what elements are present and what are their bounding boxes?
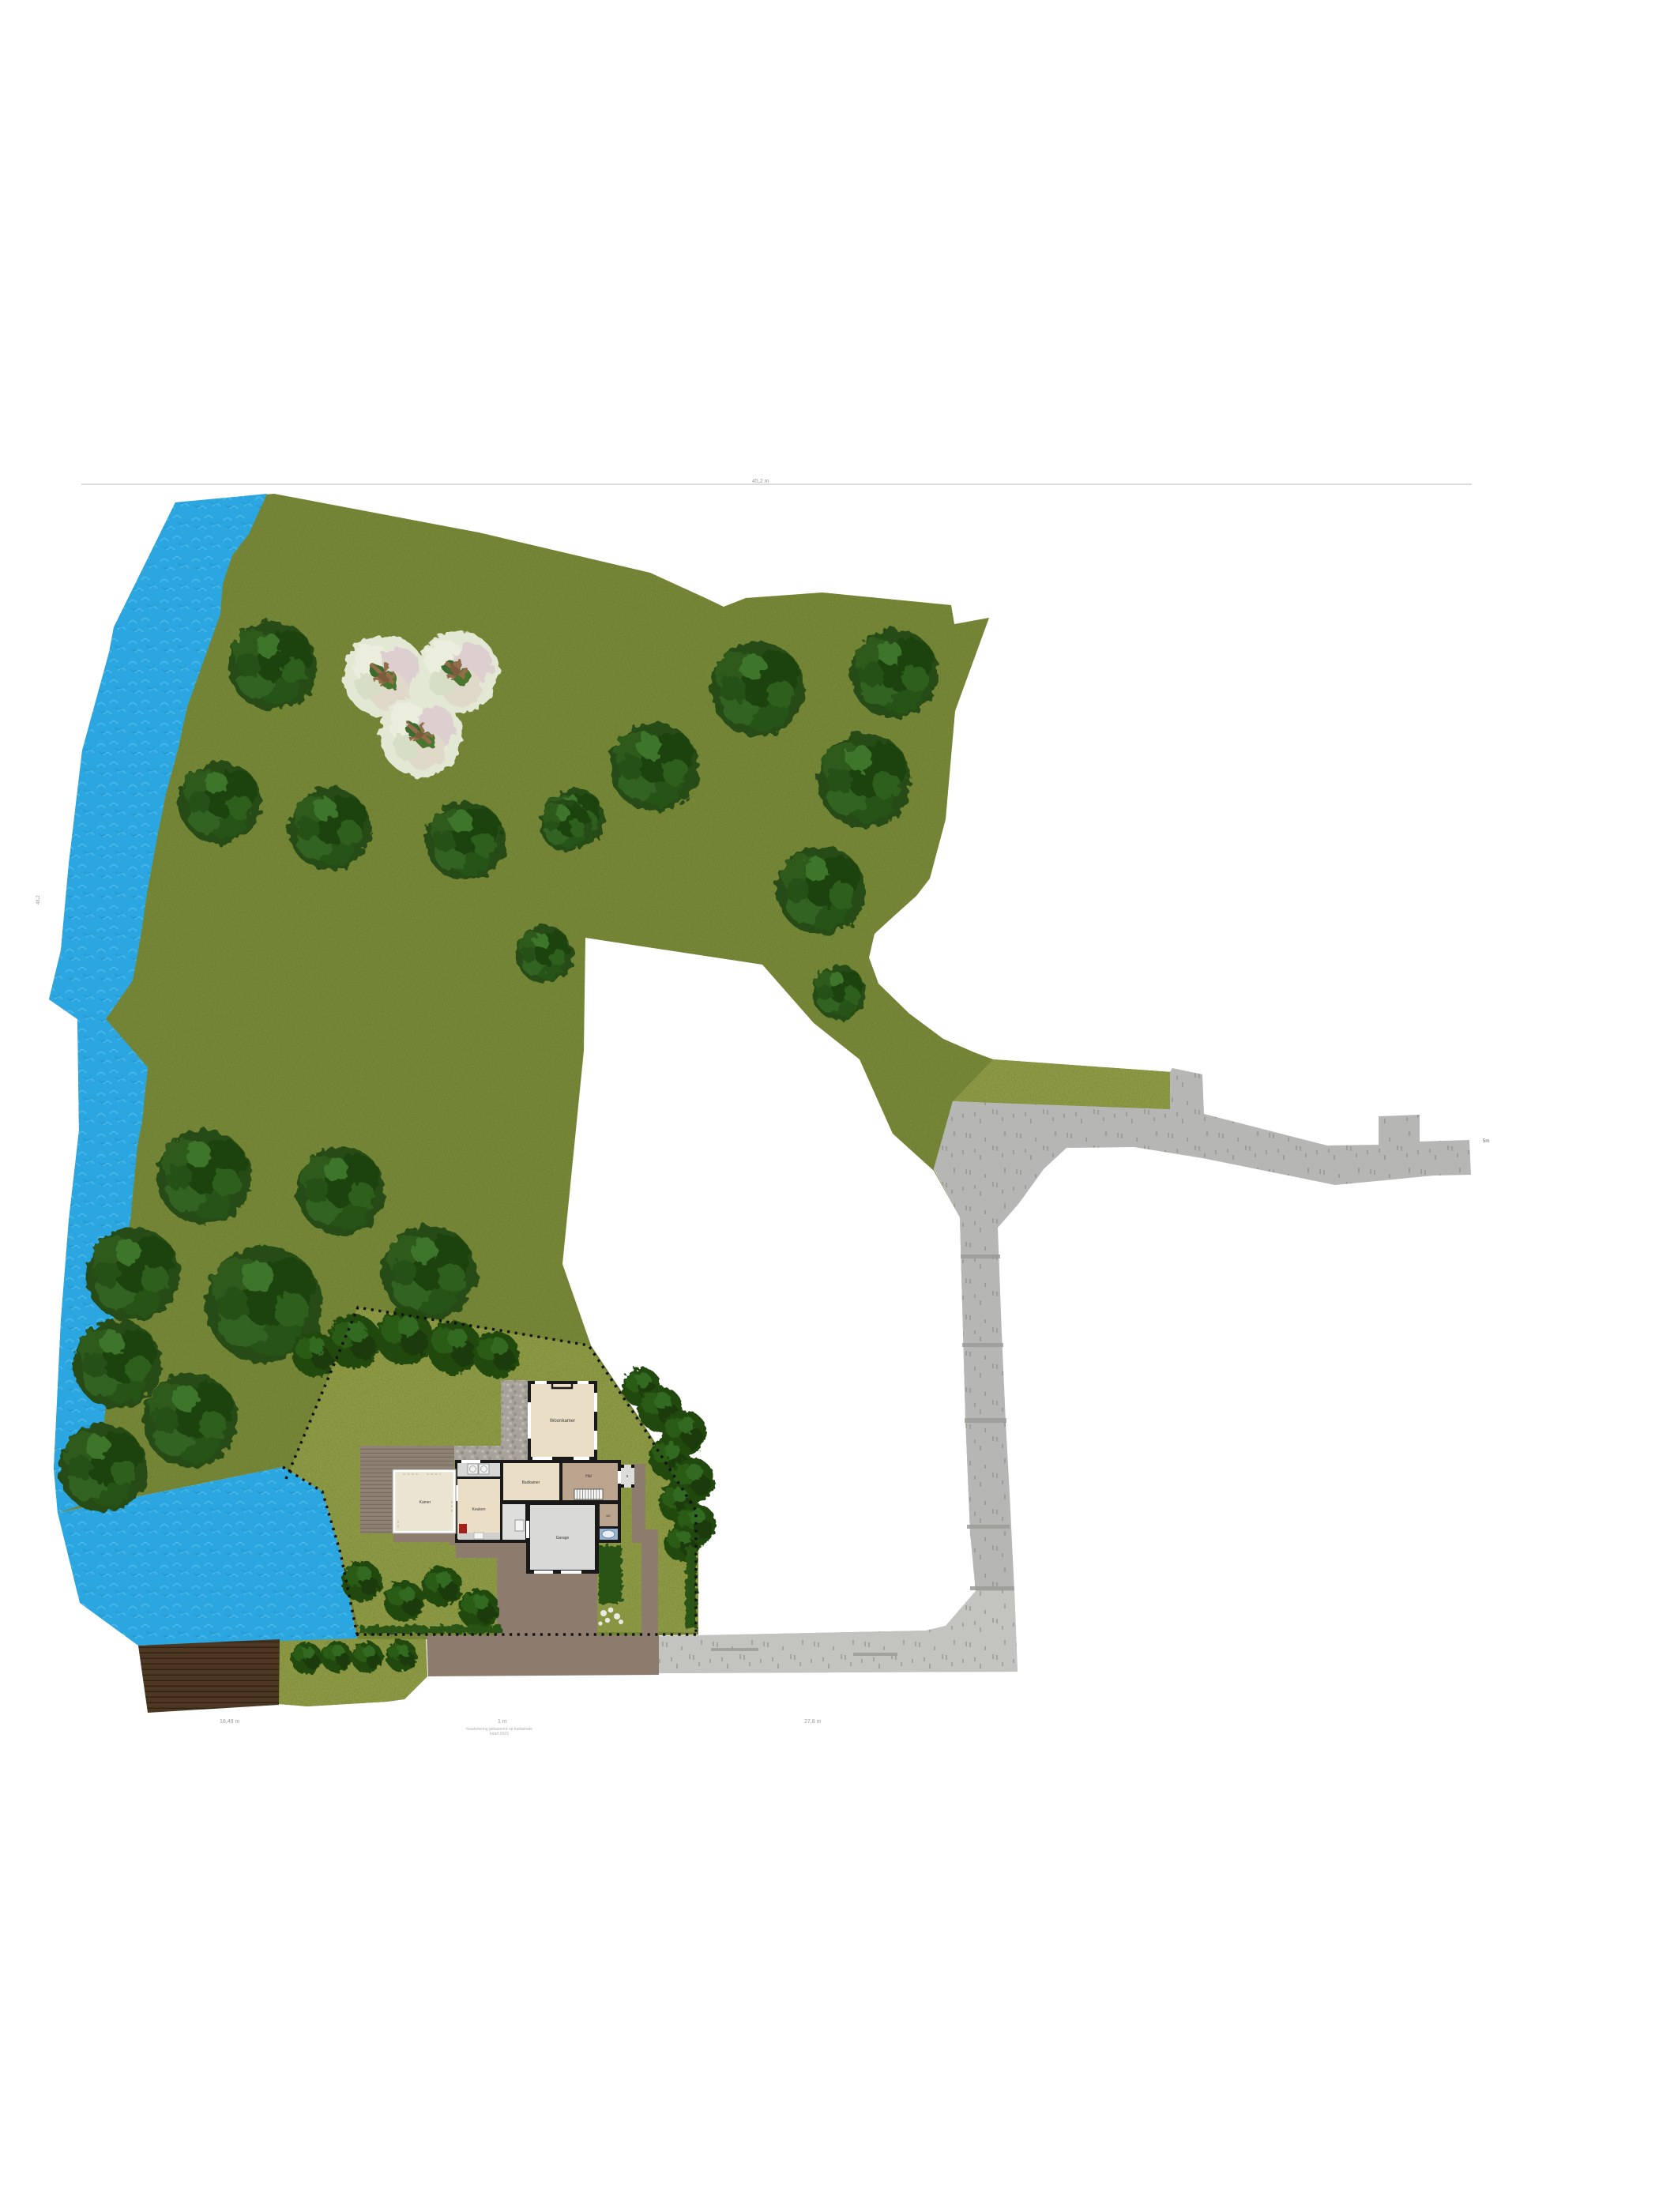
svg-text:27,8 m: 27,8 m [804, 1719, 822, 1725]
svg-text:wc: wc [606, 1514, 611, 1518]
svg-text:48,2: 48,2 [36, 895, 41, 905]
svg-text:Badkamer: Badkamer [522, 1480, 540, 1485]
svg-text:Kamer: Kamer [419, 1500, 431, 1505]
svg-text:5m: 5m [1483, 1139, 1489, 1144]
svg-text:Keuken: Keuken [472, 1507, 486, 1512]
svg-text:45,2 m: 45,2 m [752, 479, 769, 484]
svg-text:Woonkamer: Woonkamer [550, 1419, 575, 1424]
svg-text:kaart 2023: kaart 2023 [490, 1732, 509, 1736]
svg-text:Hal: Hal [585, 1474, 592, 1479]
svg-text:Garage: Garage [556, 1536, 570, 1540]
svg-text:1 m: 1 m [498, 1719, 507, 1725]
svg-text:18,49 m: 18,49 m [220, 1719, 239, 1725]
